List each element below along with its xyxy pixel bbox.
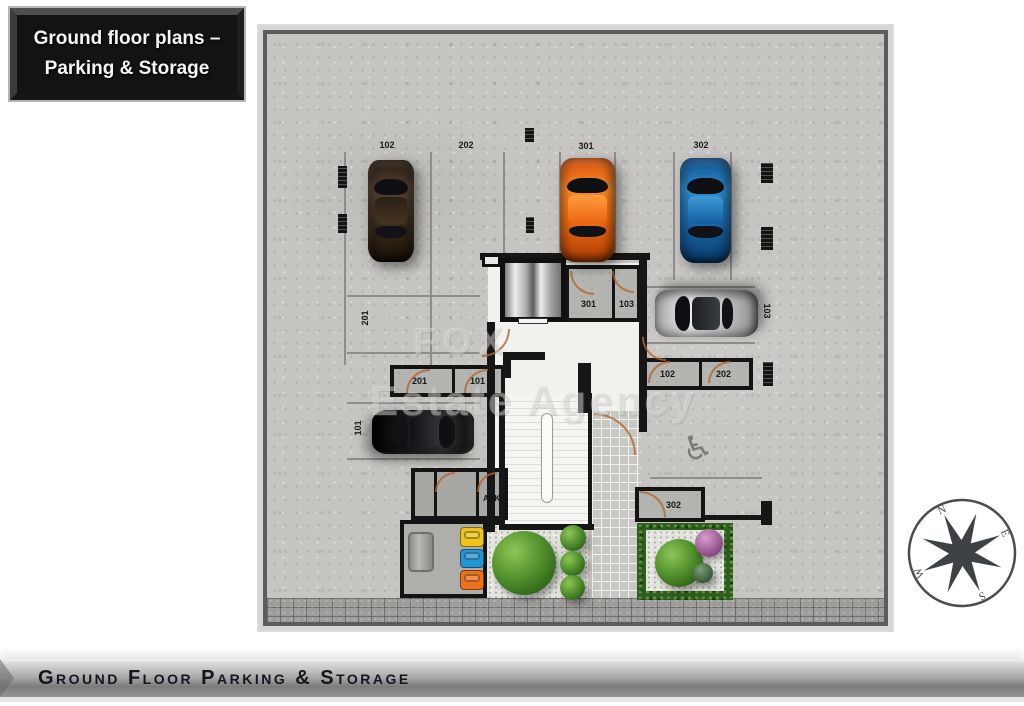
footer-banner: Ground Floor Parking & Storage	[0, 659, 1024, 697]
compass-star-icon	[906, 497, 1018, 609]
storage-label-301: 301	[581, 299, 596, 309]
compass-e: E	[998, 528, 1012, 539]
large-bush	[492, 531, 556, 595]
floor-plan: 102 202 301 302 201 101 103 301 103 201 …	[258, 25, 893, 631]
room-divider	[452, 369, 455, 393]
stair-wall	[499, 393, 505, 530]
room-divider	[434, 472, 437, 516]
compass-rose: N E S W	[903, 494, 1021, 612]
room-divider	[476, 472, 479, 516]
stall-line	[430, 152, 432, 365]
waste-bin-orange	[460, 570, 484, 590]
column	[525, 128, 534, 142]
car-spot-301	[560, 158, 615, 262]
column	[338, 166, 347, 188]
elevator	[500, 258, 566, 322]
waste-bin-yellow	[460, 527, 484, 547]
round-bush	[560, 551, 585, 576]
shaft-closet	[482, 254, 501, 267]
column	[338, 214, 347, 233]
sofa	[408, 532, 434, 572]
stall-line	[673, 152, 675, 280]
car-spot-302	[680, 158, 731, 263]
compass-s: S	[977, 589, 988, 602]
column	[763, 362, 773, 386]
column	[526, 217, 534, 233]
title-plaque: Ground floor plans – Parking & Storage	[10, 8, 244, 100]
stall-line	[347, 295, 480, 297]
car-spot-102	[368, 160, 414, 262]
stall-line	[650, 477, 762, 479]
elevator-sill	[518, 318, 548, 324]
stall-label-102: 102	[367, 140, 407, 151]
stair-rail	[541, 413, 553, 503]
garden-wall	[705, 515, 765, 520]
garden-tree-purple	[695, 529, 723, 557]
stall-label-201: 201	[360, 303, 370, 333]
garden-wall	[761, 501, 772, 525]
stall-label-202: 202	[446, 140, 486, 151]
title-line-2: Parking & Storage	[45, 54, 210, 84]
storage-label-103: 103	[619, 299, 634, 309]
stall-line	[347, 458, 480, 460]
stall-label-103: 103	[762, 296, 772, 326]
stair-wall	[588, 393, 592, 530]
wall-stub	[503, 360, 511, 378]
sidewalk-pavers	[267, 598, 884, 622]
stall-label-301: 301	[566, 141, 606, 152]
stall-line	[347, 352, 480, 354]
waste-bin-blue	[460, 549, 484, 568]
title-line-1: Ground floor plans –	[34, 24, 221, 54]
stall-line	[347, 402, 480, 404]
column	[761, 163, 773, 183]
round-bush	[560, 525, 586, 551]
disabled-parking-icon: ♿	[678, 425, 717, 471]
column	[761, 227, 773, 250]
garden-shrub	[693, 563, 713, 583]
car-spot-103	[655, 290, 758, 337]
compass-n: N	[936, 503, 948, 517]
wall-stub	[503, 352, 545, 360]
stall-line	[640, 286, 755, 288]
stall-label-302: 302	[681, 140, 721, 151]
room-divider	[699, 362, 702, 386]
round-bush	[560, 575, 585, 600]
footer-label: Ground Floor Parking & Storage	[38, 659, 411, 697]
hedge-garden	[637, 523, 733, 600]
storage-label-302: 302	[666, 500, 681, 510]
stall-label-101: 101	[353, 413, 363, 443]
car-spot-101	[372, 410, 474, 454]
stall-line	[503, 152, 505, 255]
footer-strip	[0, 697, 1024, 702]
